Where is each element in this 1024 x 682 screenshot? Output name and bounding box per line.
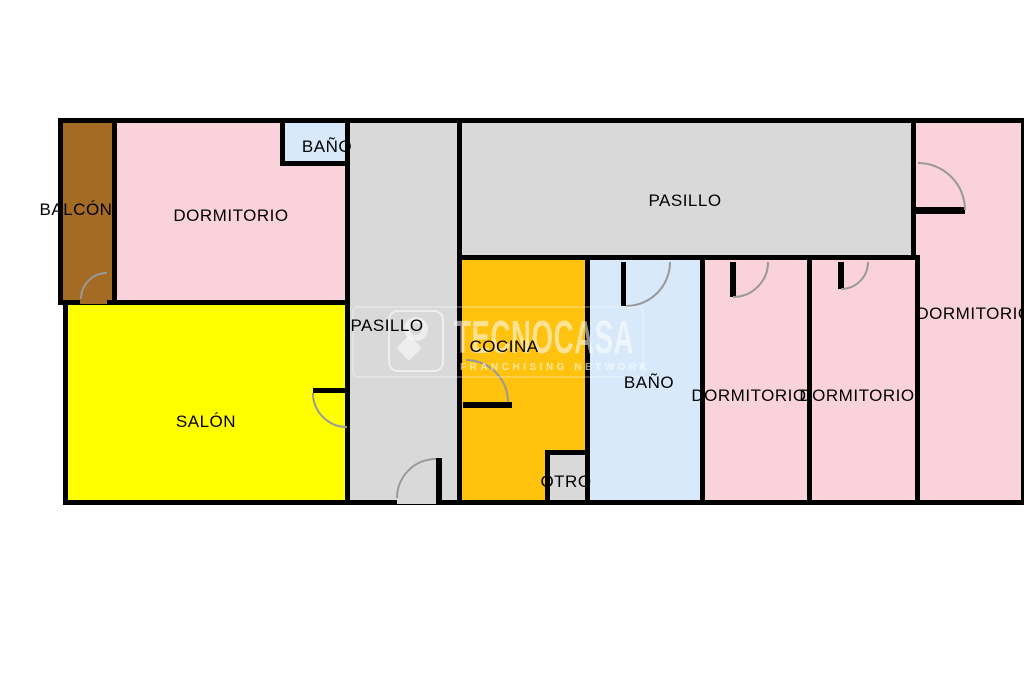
room-label-corridor-horizontal: PASILLO <box>648 191 721 211</box>
room-label-bathroom-top: BAÑO <box>302 137 352 157</box>
room-label-kitchen: COCINA <box>469 337 538 357</box>
room-label-bedroom-middle-2: DORMITORIO <box>799 386 914 406</box>
room-living-room <box>63 300 350 505</box>
room-label-balcony: BALCÓN <box>40 200 113 220</box>
room-label-living-room: SALÓN <box>176 412 236 432</box>
floor-plan: BALCÓN DORMITORIO BAÑO PASILLO PASILLO C… <box>0 0 1024 682</box>
room-corridor-horizontal <box>457 118 916 262</box>
room-label-bathroom-middle: BAÑO <box>624 373 674 393</box>
room-label-bedroom-top-left: DORMITORIO <box>173 206 288 226</box>
room-label-corridor-vertical: PASILLO <box>350 316 423 336</box>
room-corridor-vertical <box>345 118 462 505</box>
room-label-bedroom-middle-1: DORMITORIO <box>691 386 806 406</box>
room-bedroom-middle-1 <box>700 255 812 505</box>
room-label-other: OTRO <box>540 472 591 492</box>
room-bedroom-middle-2 <box>807 255 920 505</box>
room-label-bedroom-right: DORMITORIO <box>916 304 1024 324</box>
